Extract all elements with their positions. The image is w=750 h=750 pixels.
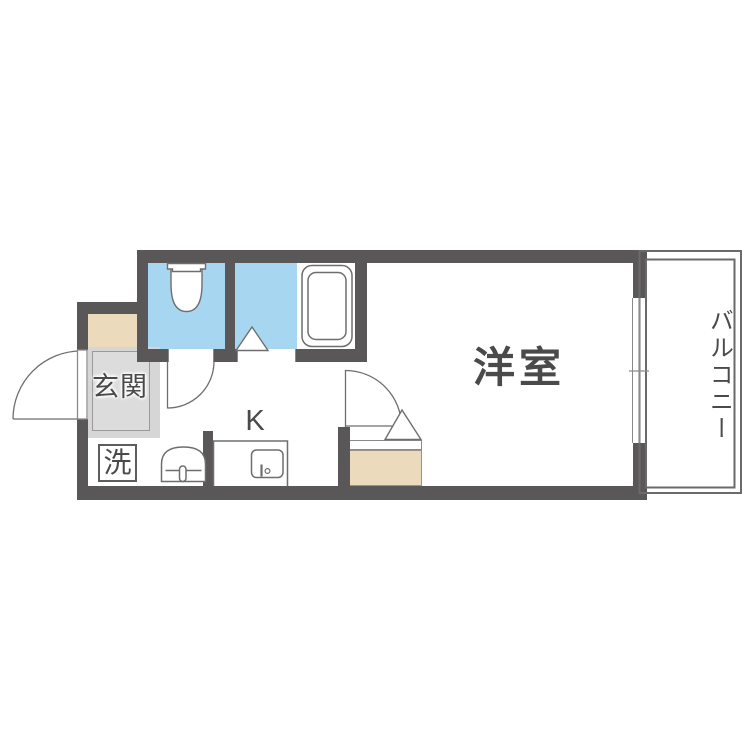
door-swing-arc-icon: [13, 351, 81, 419]
door-triangle-icon: [385, 410, 421, 440]
bathtub-icon: [302, 266, 352, 347]
kitchen-sink-icon: [252, 450, 284, 478]
door-triangle-icon: [236, 327, 268, 351]
door-swing-arc-icon: [346, 371, 402, 427]
toilet-door: [168, 362, 215, 409]
kitchen-label: K: [239, 406, 271, 438]
entrance-door: [13, 350, 87, 419]
washbasin-icon: [162, 447, 206, 482]
entrance-label: 玄関: [90, 373, 150, 403]
balcony-label: バルコニー: [705, 303, 731, 448]
door-leaf: [78, 350, 88, 419]
toilet-icon: [168, 264, 206, 312]
kitchen-counter: [214, 441, 288, 486]
laundry-label: 洗: [98, 444, 137, 482]
door-swing-arc-icon: [168, 362, 215, 409]
western-room-label: 洋室: [445, 345, 593, 391]
western-room-door: [346, 370, 422, 440]
floor-plan: 玄関 洗 K 洋室 バルコニー: [0, 0, 750, 750]
